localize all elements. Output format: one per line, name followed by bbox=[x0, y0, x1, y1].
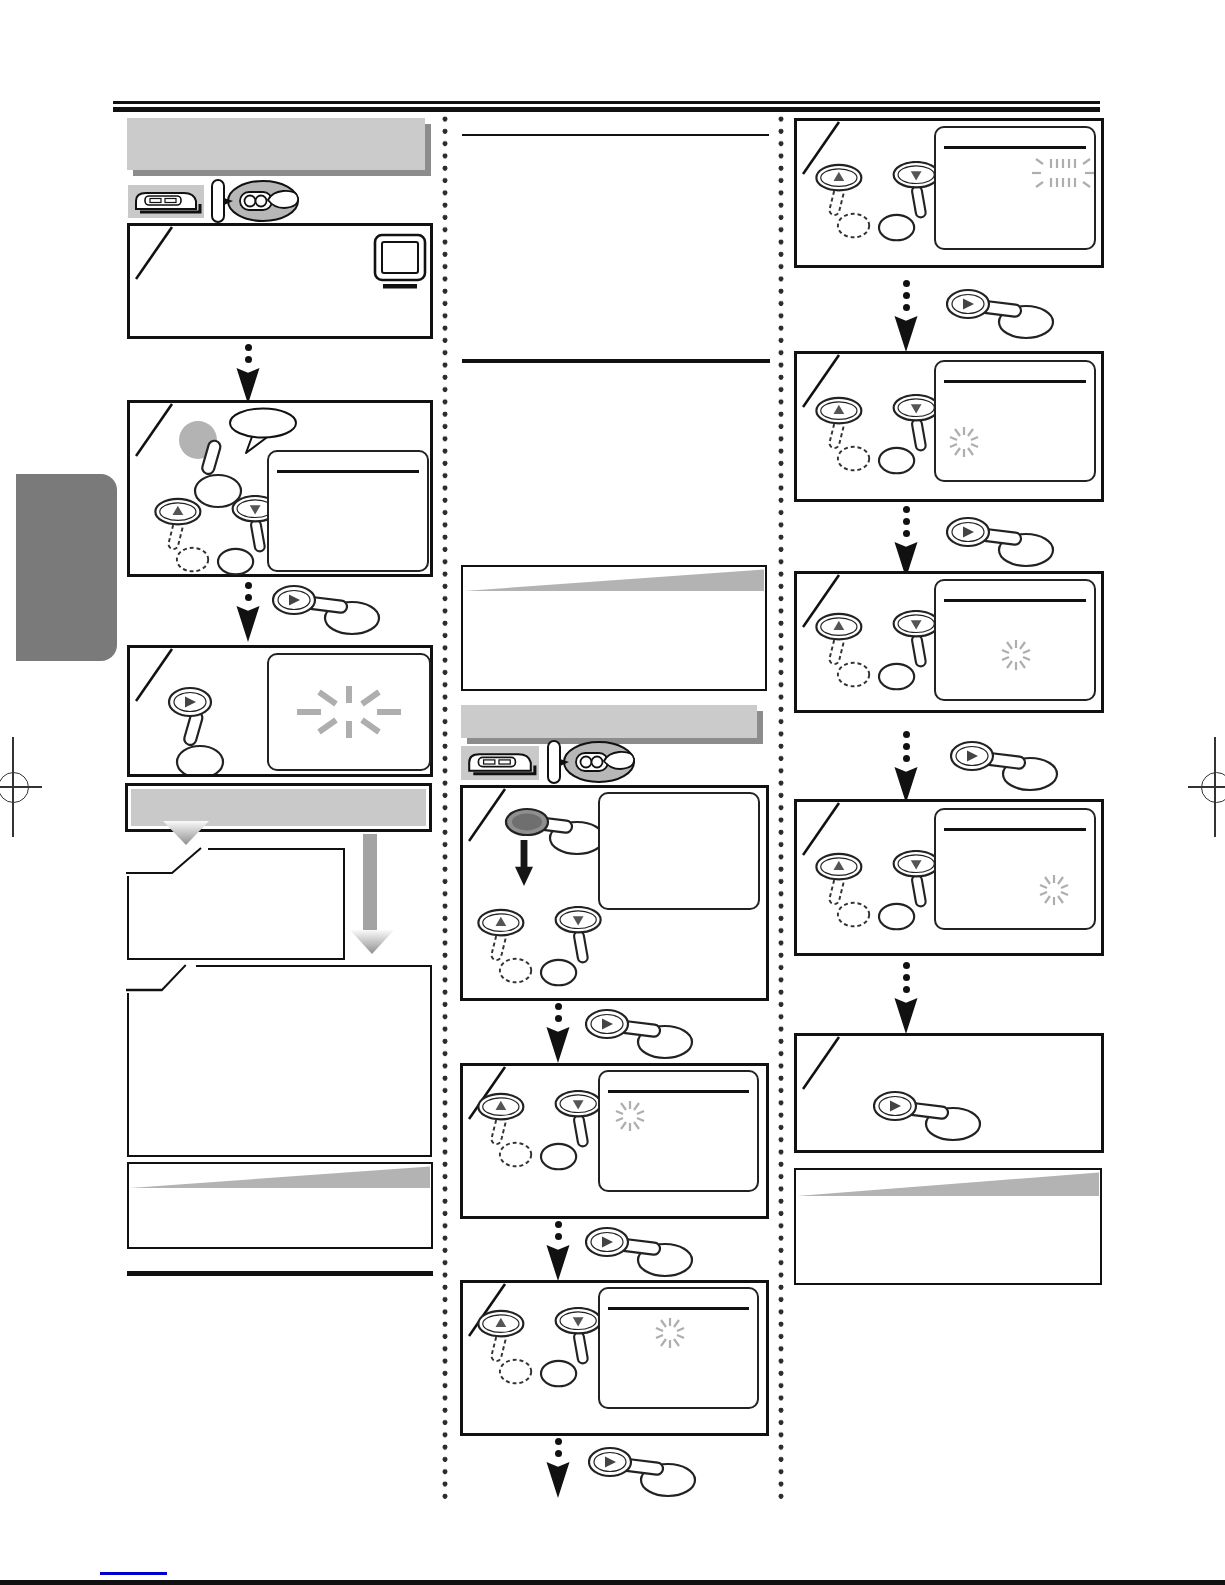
branch-arrow-right-head bbox=[350, 930, 394, 954]
tv-screen bbox=[267, 450, 429, 572]
tv-screen bbox=[267, 653, 431, 771]
flow-arrow bbox=[545, 1221, 571, 1281]
up-down-buttons-icon bbox=[813, 394, 943, 484]
remote-hand-icon bbox=[210, 179, 300, 224]
step-number-slash bbox=[135, 225, 175, 281]
up-down-buttons-icon bbox=[475, 906, 605, 996]
flow-arrow bbox=[545, 1438, 571, 1498]
section-title-banner bbox=[461, 705, 757, 738]
tv-icon bbox=[373, 233, 427, 291]
step-box-1 bbox=[127, 223, 433, 339]
step-box-1 bbox=[794, 118, 1104, 268]
screen-title-line bbox=[944, 146, 1086, 149]
column-separator-right bbox=[777, 114, 785, 1504]
dark-button-press-icon bbox=[499, 802, 614, 862]
vcr-icon bbox=[128, 185, 204, 218]
top-rule-thick bbox=[113, 107, 1100, 112]
step-box-3 bbox=[460, 1280, 769, 1436]
note-box bbox=[461, 565, 767, 691]
note-wedge bbox=[464, 568, 764, 591]
step-box-3 bbox=[794, 571, 1104, 713]
flow-arrow bbox=[893, 280, 919, 352]
flash-burst-icon bbox=[1036, 872, 1072, 908]
top-rule-thin bbox=[113, 101, 1100, 104]
up-down-buttons-icon bbox=[813, 850, 943, 940]
up-down-buttons-icon bbox=[475, 1307, 605, 1397]
tv-screen bbox=[598, 1287, 759, 1409]
case-box-large bbox=[127, 965, 432, 1157]
flow-arrow bbox=[545, 1003, 571, 1063]
tv-screen bbox=[934, 126, 1096, 250]
flashing-display-icon bbox=[1028, 155, 1098, 193]
flash-burst-icon bbox=[946, 424, 982, 460]
note-box bbox=[127, 1162, 433, 1249]
manual-page bbox=[0, 0, 1225, 1585]
step-box-2 bbox=[794, 351, 1104, 502]
remote-hand-icon bbox=[546, 740, 636, 785]
flow-arrow bbox=[893, 731, 919, 803]
play-button-hand-icon bbox=[950, 740, 1062, 798]
screen-title-line bbox=[608, 1090, 749, 1093]
up-down-buttons-icon bbox=[475, 1090, 605, 1180]
up-down-buttons-icon bbox=[152, 495, 282, 585]
screen-title-line bbox=[944, 599, 1086, 602]
note-wedge bbox=[797, 1171, 1099, 1196]
bottom-rule bbox=[0, 1580, 1225, 1585]
step-box-3 bbox=[127, 645, 433, 777]
step-box-4 bbox=[794, 799, 1104, 956]
screen-title-line bbox=[277, 470, 419, 473]
note-box bbox=[794, 1168, 1102, 1285]
play-button-press-icon bbox=[160, 686, 250, 774]
step-number-slash bbox=[135, 402, 175, 458]
flash-burst-icon bbox=[998, 637, 1034, 673]
play-button-hand-icon bbox=[873, 1090, 985, 1148]
tv-screen bbox=[598, 792, 760, 910]
note-wedge bbox=[130, 1165, 430, 1188]
play-button-hand-icon bbox=[272, 584, 384, 642]
play-button-hand-icon bbox=[588, 1446, 700, 1504]
flash-burst-icon bbox=[612, 1098, 648, 1134]
flash-burst-icon bbox=[652, 1315, 688, 1351]
chamfer-corner bbox=[126, 847, 208, 877]
heading-underline-thick bbox=[462, 359, 770, 363]
section-title-banner bbox=[127, 118, 425, 170]
tv-screen bbox=[934, 579, 1096, 701]
tv-screen bbox=[934, 360, 1096, 482]
screen-title-line bbox=[608, 1307, 749, 1310]
flow-arrow bbox=[235, 344, 261, 404]
speech-bubble-icon bbox=[227, 407, 299, 455]
play-button-hand-icon bbox=[946, 516, 1058, 574]
chamfer-corner bbox=[126, 964, 196, 994]
flow-arrow bbox=[235, 582, 261, 642]
flow-arrow bbox=[893, 506, 919, 578]
play-button-hand-icon bbox=[946, 288, 1058, 346]
screen-title-line bbox=[944, 828, 1086, 831]
step-number-slash bbox=[802, 801, 842, 857]
screen-title-line bbox=[944, 380, 1086, 383]
up-down-buttons-icon bbox=[813, 610, 943, 700]
flash-burst-icon bbox=[291, 682, 407, 742]
chapter-tab bbox=[16, 474, 117, 661]
step-number-slash bbox=[802, 1035, 842, 1091]
step-box-2 bbox=[127, 400, 433, 577]
heading-underline-thin bbox=[462, 134, 769, 136]
up-down-buttons-icon bbox=[813, 161, 943, 251]
tv-screen bbox=[934, 808, 1096, 930]
branch-arrow-left bbox=[163, 821, 209, 845]
vcr-icon bbox=[461, 746, 539, 780]
section-end-rule bbox=[127, 1271, 433, 1276]
footer-underline bbox=[100, 1572, 167, 1575]
step-box-5 bbox=[794, 1033, 1104, 1153]
step-box-2 bbox=[460, 1063, 769, 1219]
play-button-hand-icon bbox=[585, 1008, 697, 1066]
branch-arrow-right-bar bbox=[363, 834, 377, 932]
case-box-small bbox=[127, 848, 345, 960]
play-button-hand-icon bbox=[585, 1226, 697, 1284]
tv-screen bbox=[598, 1070, 759, 1192]
step-box-1 bbox=[460, 785, 769, 1001]
flow-arrow bbox=[893, 962, 919, 1034]
column-separator-left bbox=[441, 114, 449, 1504]
